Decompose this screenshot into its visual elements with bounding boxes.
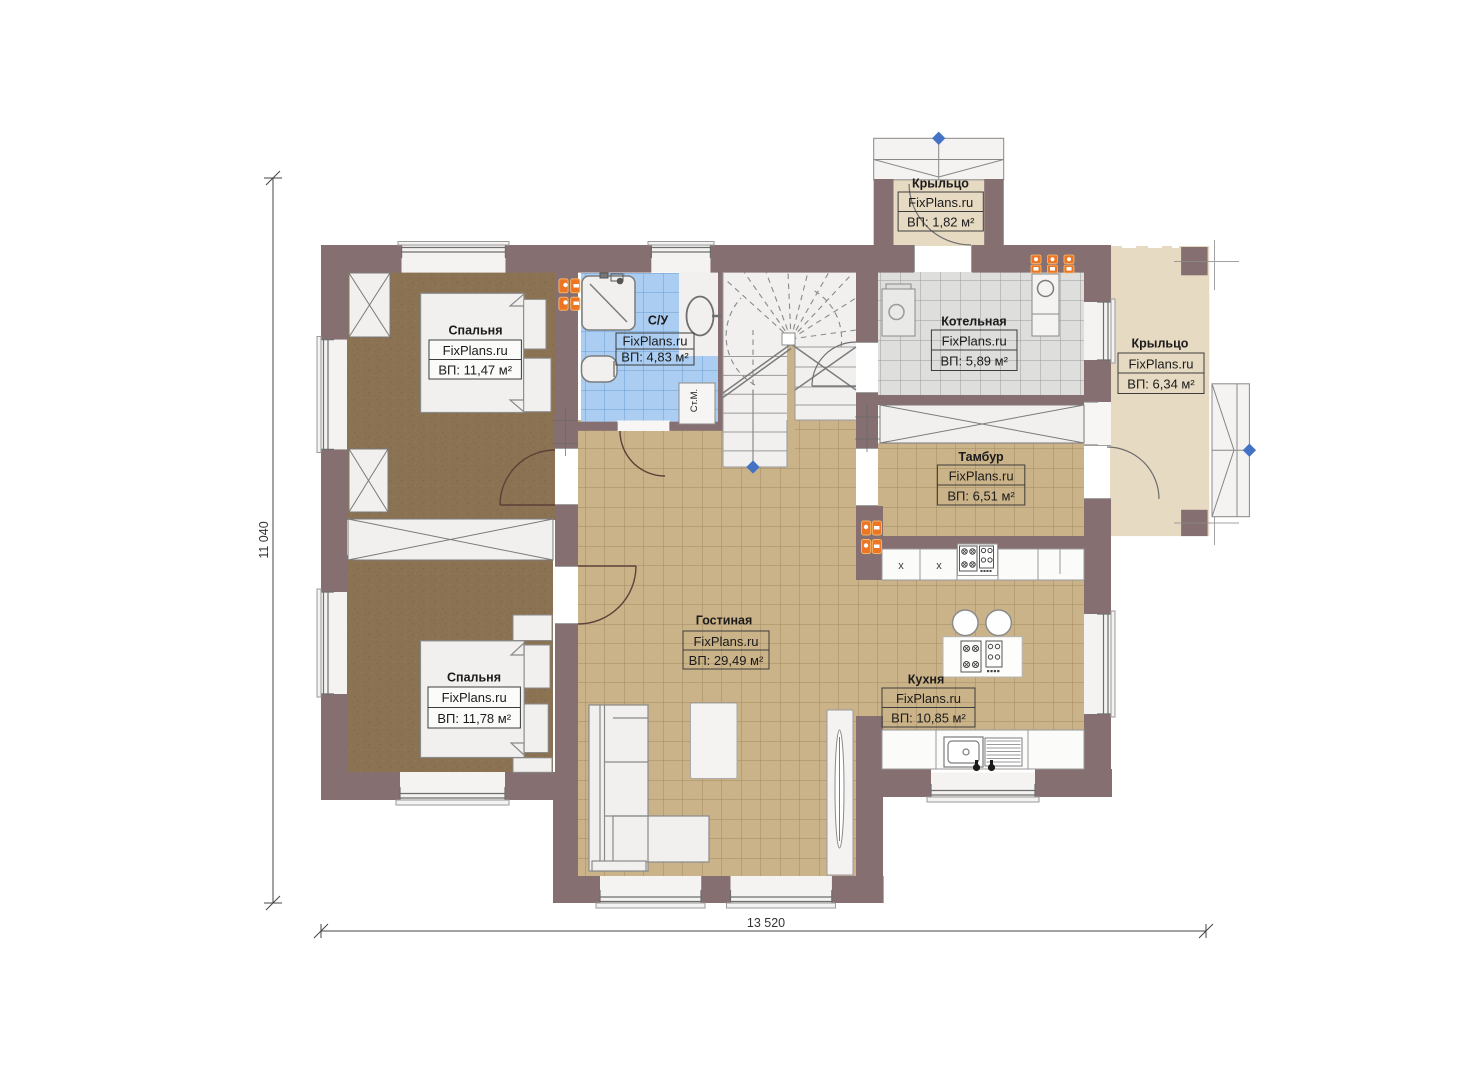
svg-text:13 520: 13 520 [747,916,785,930]
svg-text:FixPlans.ru: FixPlans.ru [1128,357,1193,372]
svg-text:ВП: 11,78 м²: ВП: 11,78 м² [437,711,511,726]
svg-text:FixPlans.ru: FixPlans.ru [442,690,507,705]
svg-text:FixPlans.ru: FixPlans.ru [693,634,758,649]
svg-text:Тамбур: Тамбур [958,450,1004,464]
svg-text:Спальня: Спальня [447,671,501,685]
svg-text:FixPlans.ru: FixPlans.ru [908,195,973,210]
svg-text:ВП: 6,51 м²: ВП: 6,51 м² [947,489,1015,504]
svg-text:FixPlans.ru: FixPlans.ru [896,691,961,706]
svg-text:ВП: 6,34 м²: ВП: 6,34 м² [1127,377,1195,392]
svg-text:С/У: С/У [648,314,669,328]
svg-text:ВП: 29,49 м²: ВП: 29,49 м² [689,653,764,668]
svg-text:ВП: 11,47 м²: ВП: 11,47 м² [438,363,512,378]
svg-text:Спальня: Спальня [449,324,503,338]
svg-text:Ст.М.: Ст.М. [689,389,700,412]
svg-text:FixPlans.ru: FixPlans.ru [443,343,508,358]
svg-text:ВП: 1,82 м²: ВП: 1,82 м² [907,215,975,230]
svg-text:FixPlans.ru: FixPlans.ru [942,334,1007,349]
svg-text:ВП: 5,89 м²: ВП: 5,89 м² [940,354,1008,369]
svg-text:Кухня: Кухня [908,673,945,687]
svg-text:x: x [898,560,904,572]
svg-text:ВП: 10,85 м²: ВП: 10,85 м² [891,711,966,726]
svg-text:ВП: 4,83 м²: ВП: 4,83 м² [621,350,689,365]
svg-text:Крыльцо: Крыльцо [1132,337,1189,351]
svg-text:Крыльцо: Крыльцо [912,177,969,191]
svg-text:FixPlans.ru: FixPlans.ru [949,469,1014,484]
svg-text:Котельная: Котельная [941,315,1006,329]
svg-text:x: x [936,560,942,572]
svg-text:FixPlans.ru: FixPlans.ru [622,334,687,349]
svg-text:Гостиная: Гостиная [696,614,753,628]
svg-text:11 040: 11 040 [257,521,271,558]
